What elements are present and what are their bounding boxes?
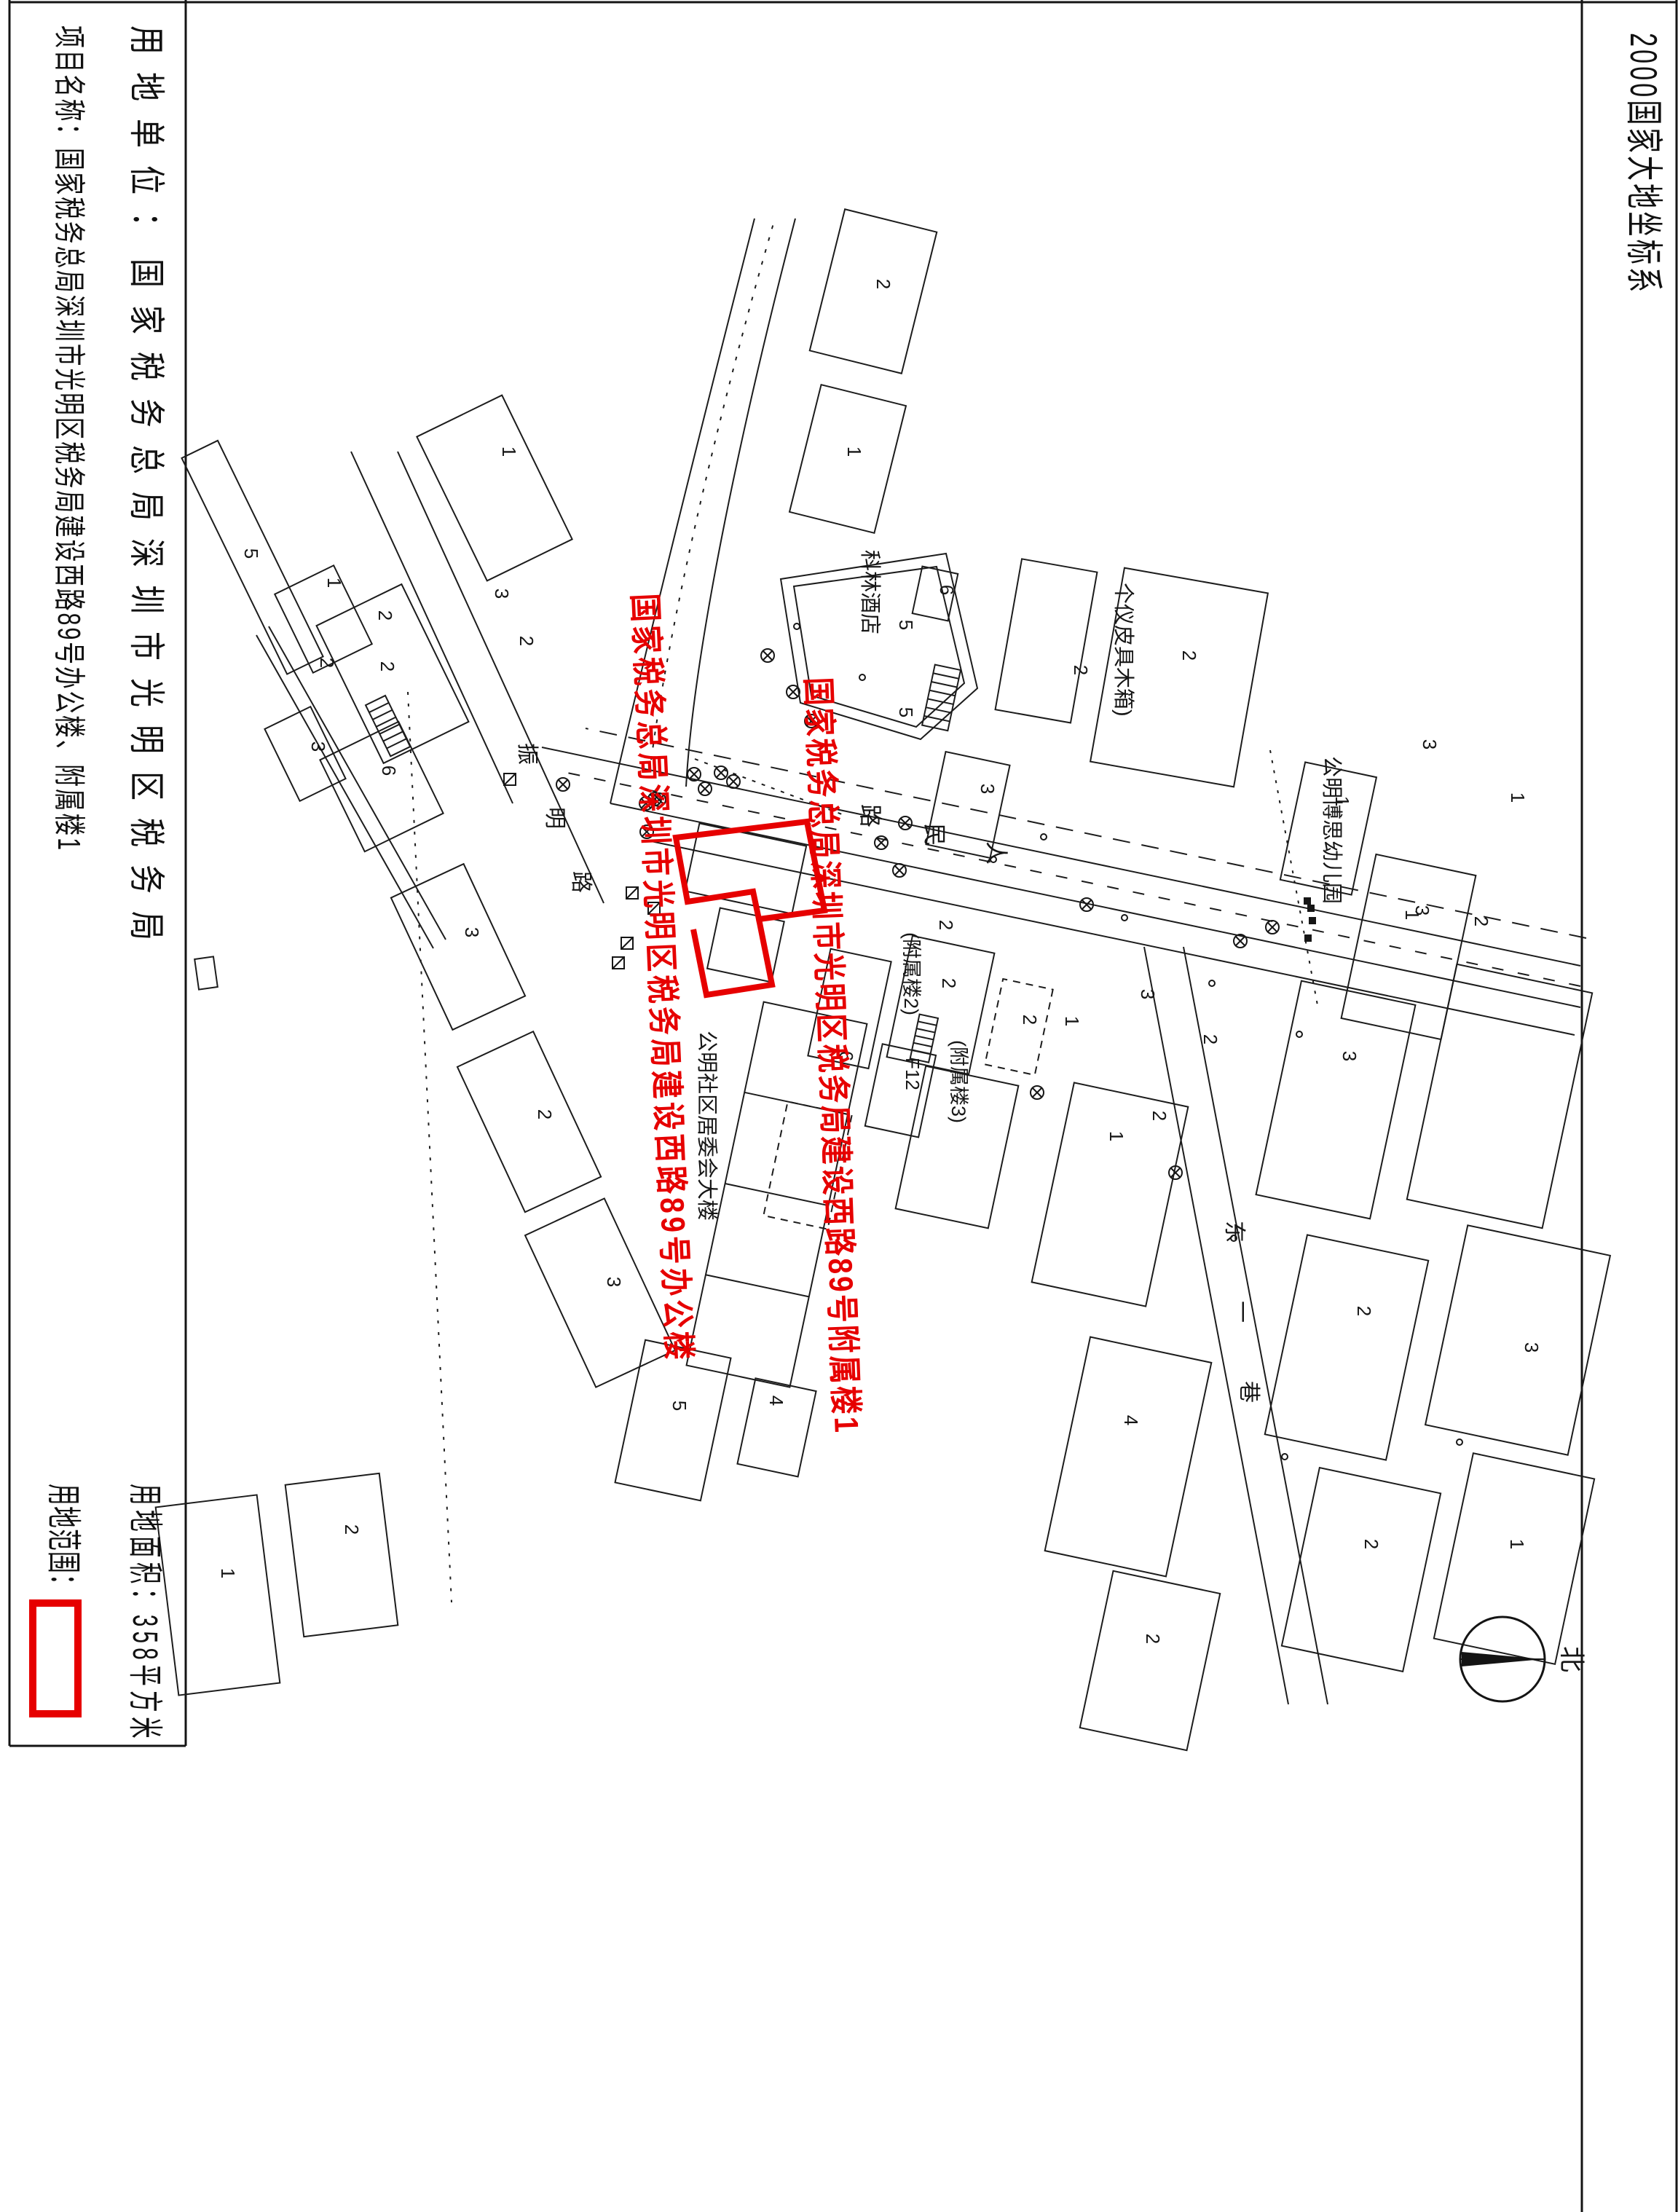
label-f12: F12 xyxy=(903,1058,922,1090)
floor-count: 2 xyxy=(938,978,960,988)
floor-count: 4 xyxy=(1120,1415,1142,1425)
floor-count: 3 xyxy=(977,784,998,794)
compass-icon xyxy=(1460,1617,1545,1701)
floor-count: 2 xyxy=(1470,916,1492,926)
land-area-row: 用地面积：358平方米 xyxy=(127,1484,162,1902)
label-north: 北 xyxy=(1559,1646,1585,1672)
land-user-label: 用地单位： xyxy=(126,25,167,259)
floor-count: 3 xyxy=(1411,905,1433,916)
floor-count: 2 xyxy=(1178,650,1200,661)
floor-count: 2 xyxy=(1019,1015,1041,1025)
floor-count: 2 xyxy=(516,636,537,646)
floor-count: 5 xyxy=(669,1401,690,1411)
land-scope-red-swatch xyxy=(29,1599,82,1717)
floor-count: 1 xyxy=(217,1568,239,1578)
label-leather-box-shop: 个仪皮具木箱) xyxy=(1112,583,1133,717)
project-name-label: 项目名称： xyxy=(51,25,87,148)
floor-count: 2 xyxy=(1360,1539,1382,1549)
floor-count: 1 xyxy=(1506,1539,1528,1549)
label-annex-3: (附属楼3) xyxy=(948,1040,968,1123)
floor-count: 1 xyxy=(1061,1016,1083,1026)
land-area-value: 358平方米 xyxy=(125,1615,164,1743)
floor-count: 1 xyxy=(498,446,520,457)
floor-count: 2 xyxy=(316,658,338,668)
red-parcel-boundary xyxy=(676,822,824,995)
project-name-value: 国家税务总局深圳市光明区税务局建设西路89号办公楼、附属楼1 xyxy=(51,148,87,852)
label-renmin-road-2: 民 xyxy=(923,823,946,846)
scanned-land-use-drawing: { "colors": {"line": "#161616", "red": "… xyxy=(0,0,1678,2212)
floor-count: 3 xyxy=(1137,989,1159,999)
buildings xyxy=(156,209,1610,1750)
floor-count: 3 xyxy=(461,927,483,937)
floor-count: 5 xyxy=(240,548,262,559)
floor-count: 2 xyxy=(1353,1306,1375,1316)
floor-count: 3 xyxy=(491,589,513,599)
floor-count: 3 xyxy=(1339,1051,1360,1061)
label-dongyi-lane-1: 东 xyxy=(1223,1221,1245,1243)
floor-count: 1 xyxy=(1507,792,1529,803)
floor-count: 6 xyxy=(936,585,958,595)
floor-count: 5 xyxy=(895,707,917,717)
floor-count: 2 xyxy=(935,920,957,930)
floor-count-markers: 1231313221423221223255622316453231221631… xyxy=(217,279,1543,1644)
floor-count: 2 xyxy=(374,610,396,621)
land-scope-label: 用地范围： xyxy=(44,1484,82,1597)
floor-count: 2 xyxy=(534,1109,556,1119)
label-renmin-road-3: 路 xyxy=(859,804,882,827)
drawing-sheet: 1231313221423221223255622316453231221631… xyxy=(0,0,1678,2212)
label-zhenming-road-2: 明 xyxy=(543,807,565,829)
label-dongyi-lane-3: 巷 xyxy=(1237,1381,1259,1403)
floor-count: 6 xyxy=(378,765,400,776)
floor-count: 2 xyxy=(873,279,894,289)
project-name-row: 项目名称：国家税务总局深圳市光明区税务局建设西路89号办公楼、附属楼1 xyxy=(52,25,84,1206)
label-community-committee: 公明社区居委会大楼 xyxy=(696,1031,717,1221)
floor-count: 3 xyxy=(1521,1342,1543,1353)
floor-count: 2 xyxy=(377,661,398,672)
floor-count: 2 xyxy=(1200,1034,1221,1044)
land-user-row: 用地单位：国家税务总局深圳市光明区税务局 xyxy=(128,25,165,1191)
floor-count: 2 xyxy=(1149,1111,1170,1121)
label-kelin-hotel: 科林酒店 xyxy=(859,550,880,634)
floor-count: 3 xyxy=(603,1277,625,1287)
label-zhenming-road-1: 振 xyxy=(516,743,537,765)
floor-count: 2 xyxy=(341,1524,363,1535)
floor-count: 5 xyxy=(895,620,917,630)
label-renmin-road-1: 人 xyxy=(985,841,1008,865)
land-user-value: 国家税务总局深圳市光明区税务局 xyxy=(126,259,167,958)
coordinate-system-text: 2000国家大地坐标系 xyxy=(1624,33,1662,295)
floor-count: 4 xyxy=(765,1396,787,1406)
land-area-label: 用地面积： xyxy=(125,1484,164,1615)
floor-count: 1 xyxy=(843,446,865,457)
label-zhenming-road-3: 路 xyxy=(570,871,591,893)
label-kindergarten: 公明博思幼儿园 xyxy=(1320,756,1342,904)
label-annex-2: (附属楼2) xyxy=(901,932,921,1015)
floor-count: 3 xyxy=(307,741,329,752)
floor-count: 3 xyxy=(1419,739,1441,749)
floor-count: 1 xyxy=(1106,1131,1127,1141)
floor-count: 2 xyxy=(1070,665,1092,675)
coordinate-system-title: 2000国家大地坐标系 xyxy=(1624,33,1662,430)
label-dongyi-lane-2: 一 xyxy=(1230,1301,1252,1323)
floor-count: 2 xyxy=(1142,1634,1164,1644)
floor-count: 1 xyxy=(323,578,345,588)
